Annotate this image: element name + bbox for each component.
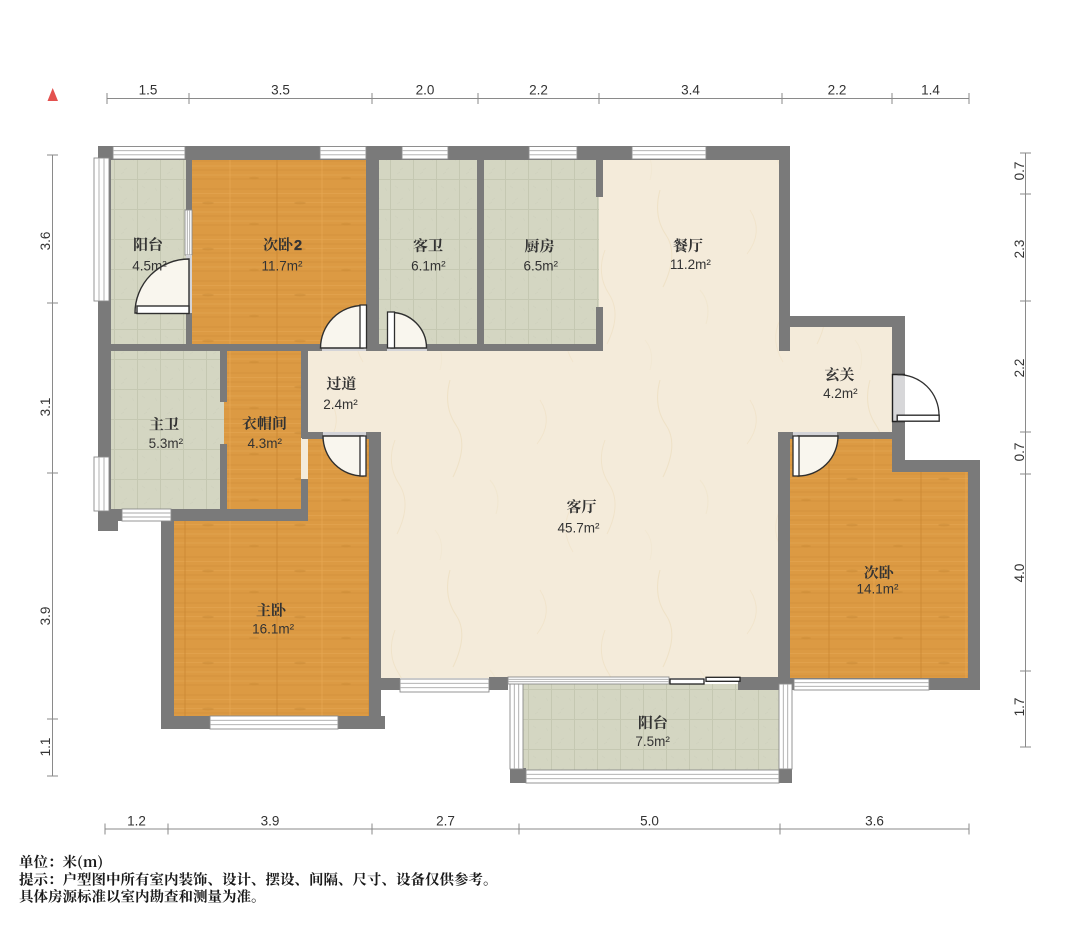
svg-text:2.0: 2.0 <box>416 83 435 98</box>
svg-text:3.6: 3.6 <box>38 232 53 251</box>
svg-text:2.4m²: 2.4m² <box>323 397 358 412</box>
svg-text:1.2: 1.2 <box>127 814 146 829</box>
svg-text:6.1m²: 6.1m² <box>411 258 446 273</box>
svg-text:1.4: 1.4 <box>921 83 940 98</box>
svg-text:1.7: 1.7 <box>1012 698 1027 717</box>
svg-text:7.5m²: 7.5m² <box>635 734 670 749</box>
svg-text:1.5: 1.5 <box>139 83 158 98</box>
svg-text:4.0: 4.0 <box>1012 564 1027 583</box>
svg-text:0.7: 0.7 <box>1012 443 1027 462</box>
svg-text:11.2m²: 11.2m² <box>670 257 712 272</box>
svg-text:2.2: 2.2 <box>529 83 548 98</box>
svg-text:5.3m²: 5.3m² <box>149 436 184 451</box>
svg-text:16.1m²: 16.1m² <box>252 621 295 636</box>
svg-text:1.1: 1.1 <box>38 738 53 757</box>
svg-text:3.9: 3.9 <box>38 607 53 626</box>
svg-text:3.5: 3.5 <box>271 83 290 98</box>
svg-text:45.7m²: 45.7m² <box>557 520 600 535</box>
svg-text:3.9: 3.9 <box>261 814 280 829</box>
svg-text:5.0: 5.0 <box>640 814 659 829</box>
svg-text:2.2: 2.2 <box>1012 359 1027 378</box>
svg-text:3.1: 3.1 <box>38 398 53 417</box>
svg-text:6.5m²: 6.5m² <box>524 258 559 273</box>
svg-text:3.6: 3.6 <box>865 814 884 829</box>
svg-text:2.7: 2.7 <box>436 814 455 829</box>
svg-text:14.1m²: 14.1m² <box>856 581 899 596</box>
svg-text:4.5m²: 4.5m² <box>132 259 167 274</box>
svg-text:0.7: 0.7 <box>1012 162 1027 181</box>
svg-text:2: 2 <box>294 238 302 254</box>
svg-text:4.3m²: 4.3m² <box>248 436 283 451</box>
svg-text:4.2m²: 4.2m² <box>823 386 858 401</box>
svg-text:11.7m²: 11.7m² <box>261 259 303 274</box>
svg-text:2.2: 2.2 <box>828 83 847 98</box>
svg-text:3.4: 3.4 <box>681 83 700 98</box>
svg-text:2.3: 2.3 <box>1012 240 1027 259</box>
